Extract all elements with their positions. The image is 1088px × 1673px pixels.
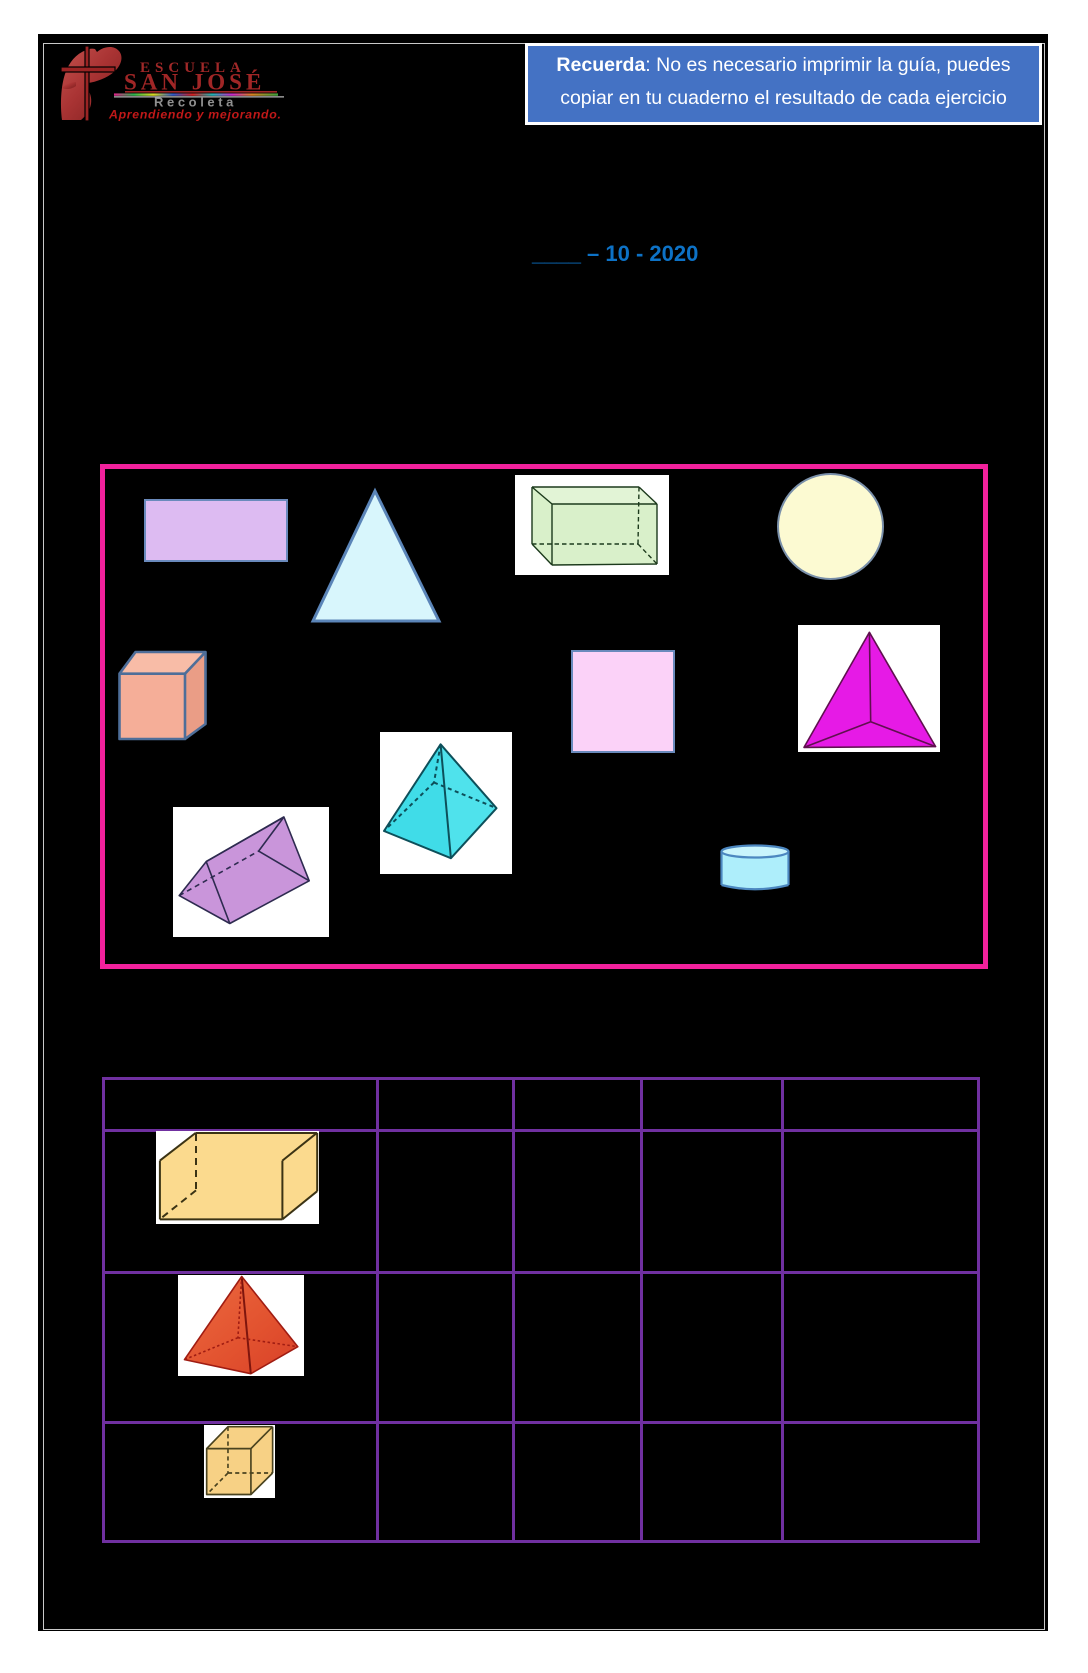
svg-text:Aprendiendo y mejorando.: Aprendiendo y mejorando. xyxy=(108,108,282,122)
svg-text:SAN JOSÉ: SAN JOSÉ xyxy=(124,70,265,95)
